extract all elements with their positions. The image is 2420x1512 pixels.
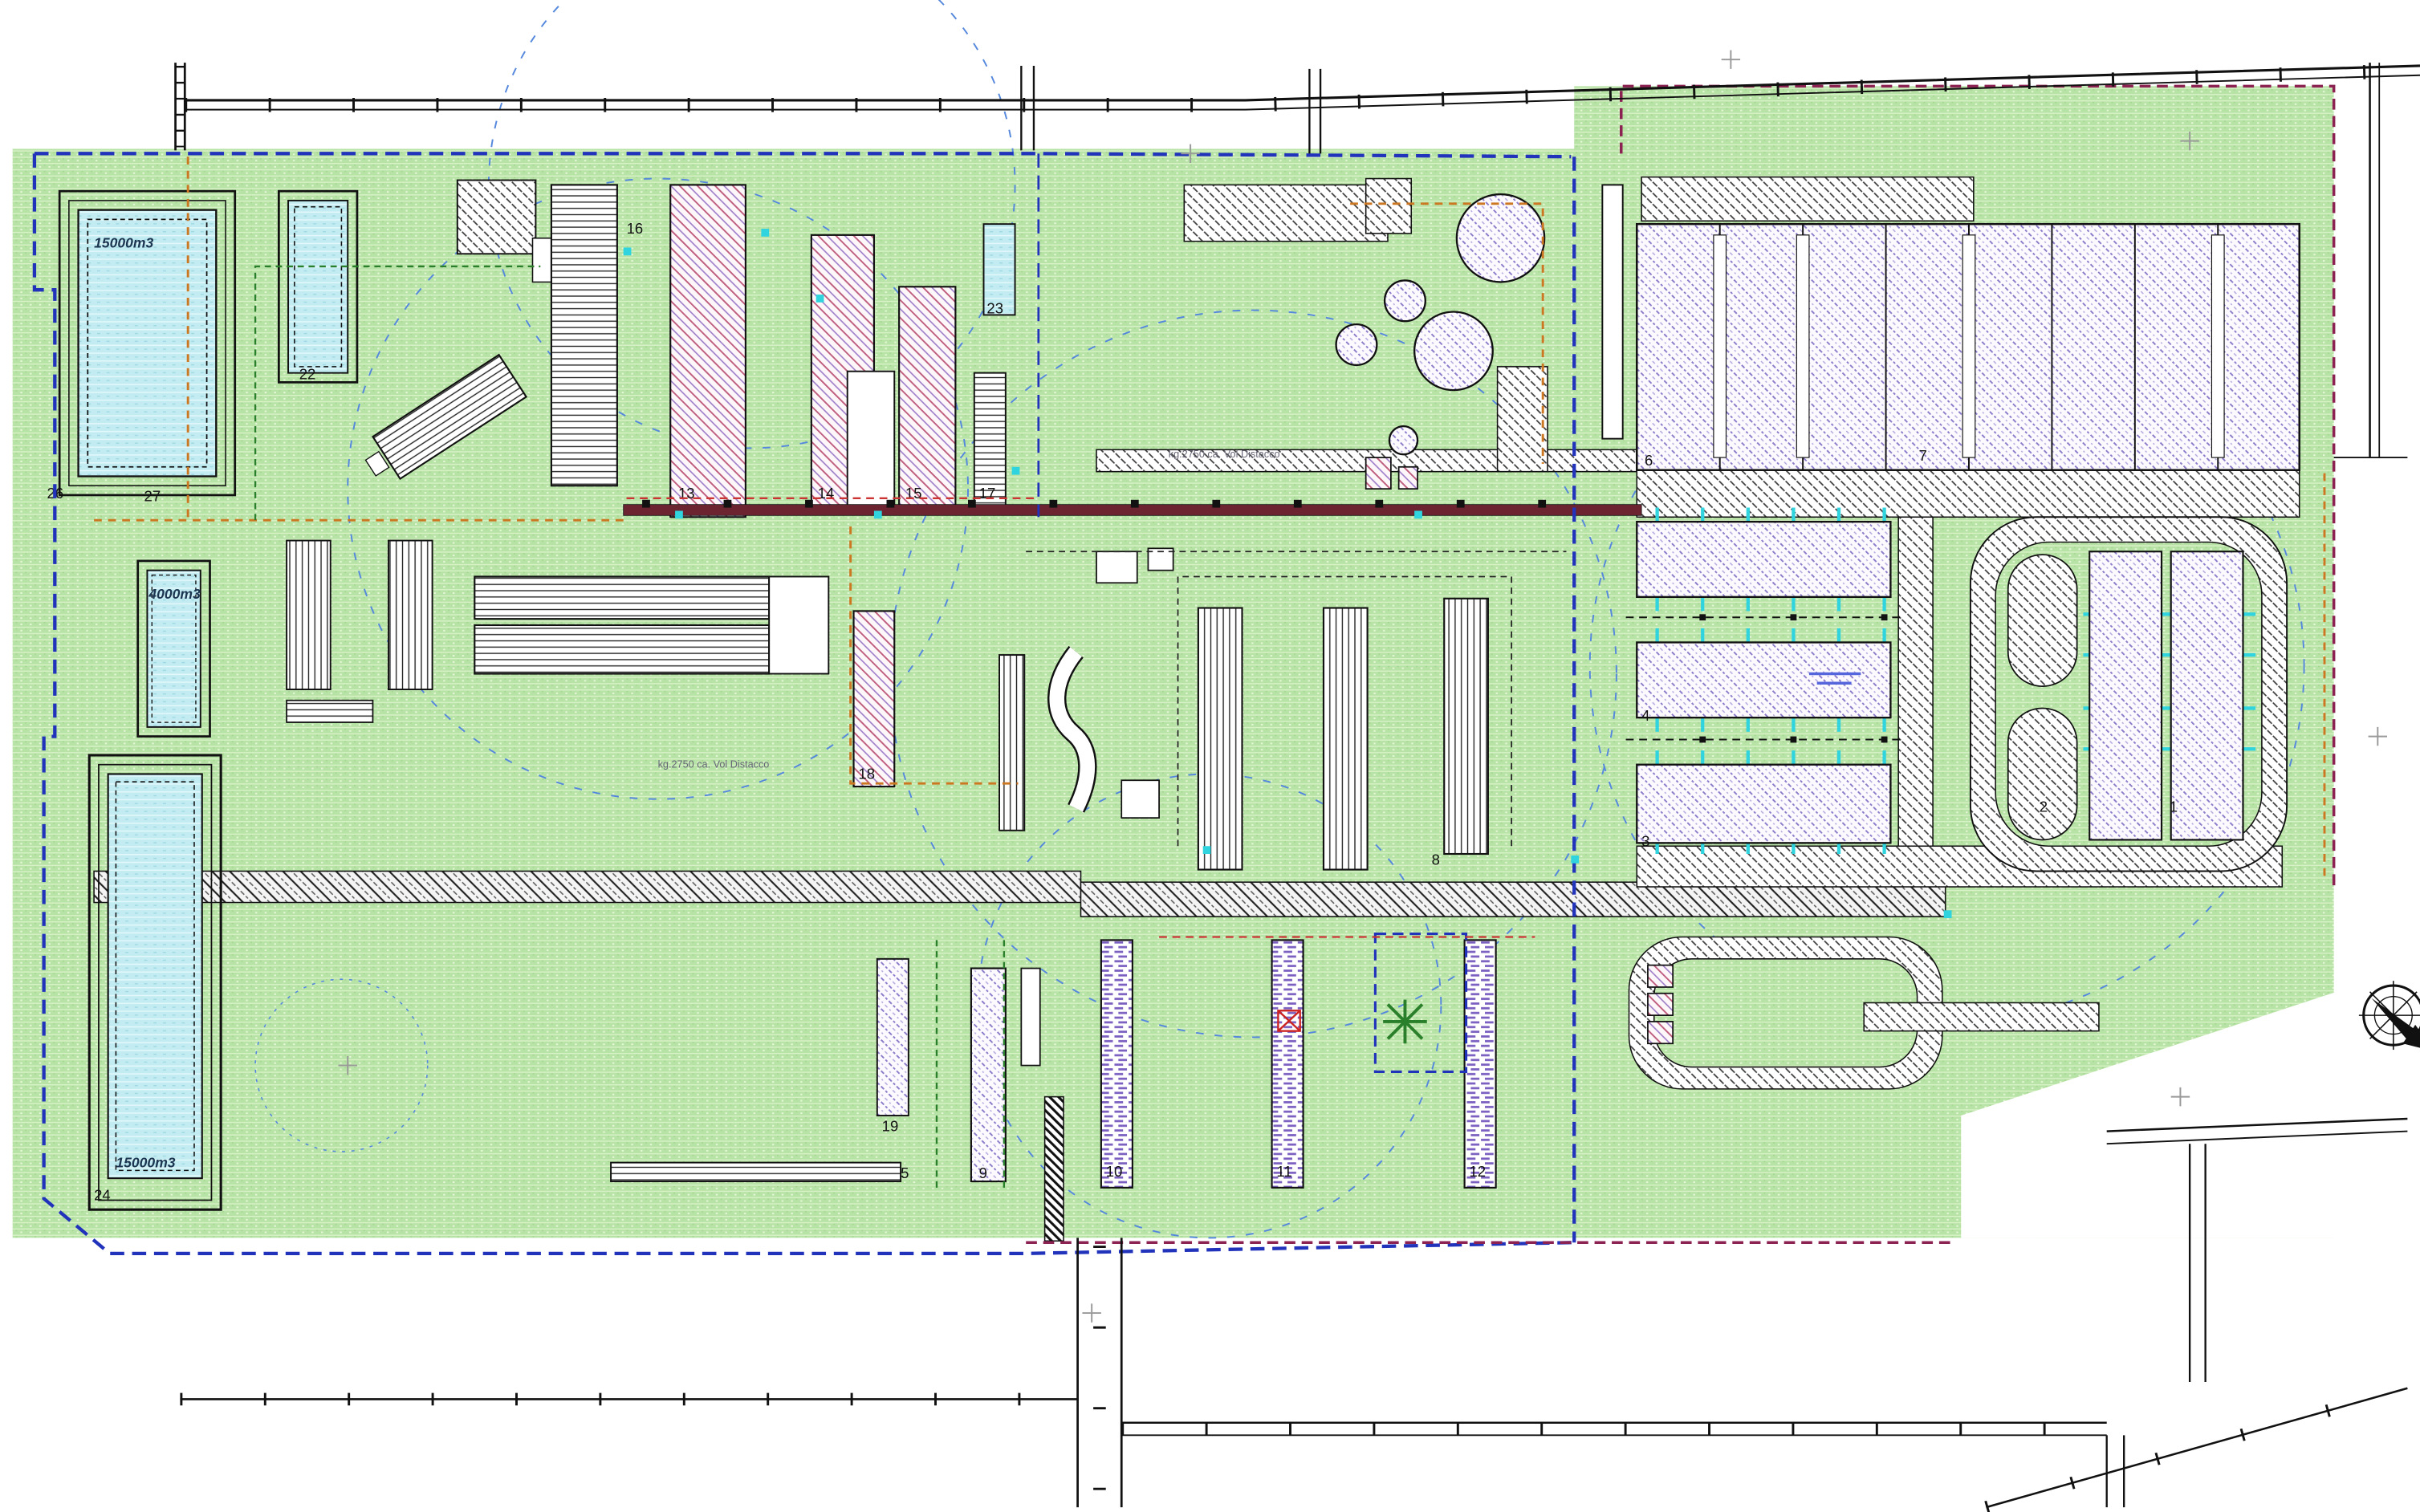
strip-19 bbox=[877, 959, 909, 1116]
annotation-top: kg.2750 ca. Vol Distacco bbox=[1169, 449, 1280, 460]
strip-9 bbox=[971, 969, 1006, 1182]
building-13 bbox=[670, 185, 746, 517]
label-18: 18 bbox=[858, 765, 875, 782]
filter-basins-left bbox=[1626, 508, 1905, 854]
pad-near-tanks-left bbox=[1366, 179, 1412, 234]
main-road-west bbox=[94, 871, 1080, 902]
basin-mid-volume: 4000m3 bbox=[148, 586, 201, 602]
strip-5 bbox=[611, 1163, 901, 1181]
label-1: 1 bbox=[2170, 798, 2178, 815]
label-10: 10 bbox=[1106, 1163, 1123, 1180]
filter-basins-right bbox=[1971, 517, 2287, 871]
annotation-center: kg.2750 ca. Vol Distacco bbox=[658, 759, 770, 770]
label-23: 23 bbox=[986, 299, 1003, 316]
tree-symbol bbox=[1383, 1000, 1427, 1044]
label-12: 12 bbox=[1469, 1163, 1486, 1180]
pad-near-tanks-right bbox=[1498, 367, 1548, 472]
label-27: 27 bbox=[144, 488, 161, 505]
pad-near-tanks-top bbox=[1184, 185, 1388, 241]
label-2: 2 bbox=[2040, 798, 2048, 815]
center-towers bbox=[1198, 599, 1488, 870]
site-plan: 15000m3 26 27 22 4000m3 15000m3 24 16 13… bbox=[0, 0, 2420, 1512]
label-6: 6 bbox=[1645, 452, 1653, 469]
building-15 bbox=[899, 287, 955, 514]
warehouse bbox=[1602, 185, 2299, 469]
basin-bottom-volume: 15000m3 bbox=[116, 1154, 175, 1170]
label-22: 22 bbox=[299, 365, 316, 382]
label-16: 16 bbox=[627, 220, 644, 237]
road-below-warehouse bbox=[1637, 470, 2299, 518]
road-between-filters bbox=[1898, 517, 1933, 849]
building-18 bbox=[854, 611, 895, 786]
long-building-1 bbox=[474, 576, 769, 619]
building-8 bbox=[1444, 599, 1488, 854]
strip-12 bbox=[1465, 940, 1496, 1187]
basin-bottom-left: 15000m3 24 bbox=[89, 755, 221, 1209]
label-3: 3 bbox=[1641, 832, 1649, 849]
basin-small-top: 22 bbox=[279, 191, 357, 382]
strip-top-right bbox=[1641, 177, 1974, 222]
label-5: 5 bbox=[901, 1164, 909, 1181]
building-mid-white bbox=[848, 372, 895, 510]
basin-mid-left: 4000m3 bbox=[138, 561, 210, 737]
building-16 bbox=[551, 185, 617, 486]
label-19: 19 bbox=[882, 1118, 899, 1135]
label-4: 4 bbox=[1641, 707, 1649, 724]
label-8: 8 bbox=[1432, 852, 1440, 868]
wall-strip-bottom bbox=[1045, 1097, 1064, 1242]
strip-11 bbox=[1272, 940, 1304, 1187]
label-11: 11 bbox=[1276, 1163, 1291, 1180]
label-24: 24 bbox=[94, 1186, 111, 1203]
label-7: 7 bbox=[1919, 447, 1927, 464]
basin-top-volume: 15000m3 bbox=[94, 234, 153, 250]
label-9: 9 bbox=[979, 1164, 987, 1181]
road-loop-stub bbox=[1864, 1002, 2099, 1030]
loop-small-cells bbox=[1648, 965, 1673, 1044]
long-building-2 bbox=[474, 625, 769, 674]
site-plan-svg: 15000m3 26 27 22 4000m3 15000m3 24 16 13… bbox=[0, 0, 2420, 1512]
strip-10 bbox=[1101, 940, 1133, 1187]
